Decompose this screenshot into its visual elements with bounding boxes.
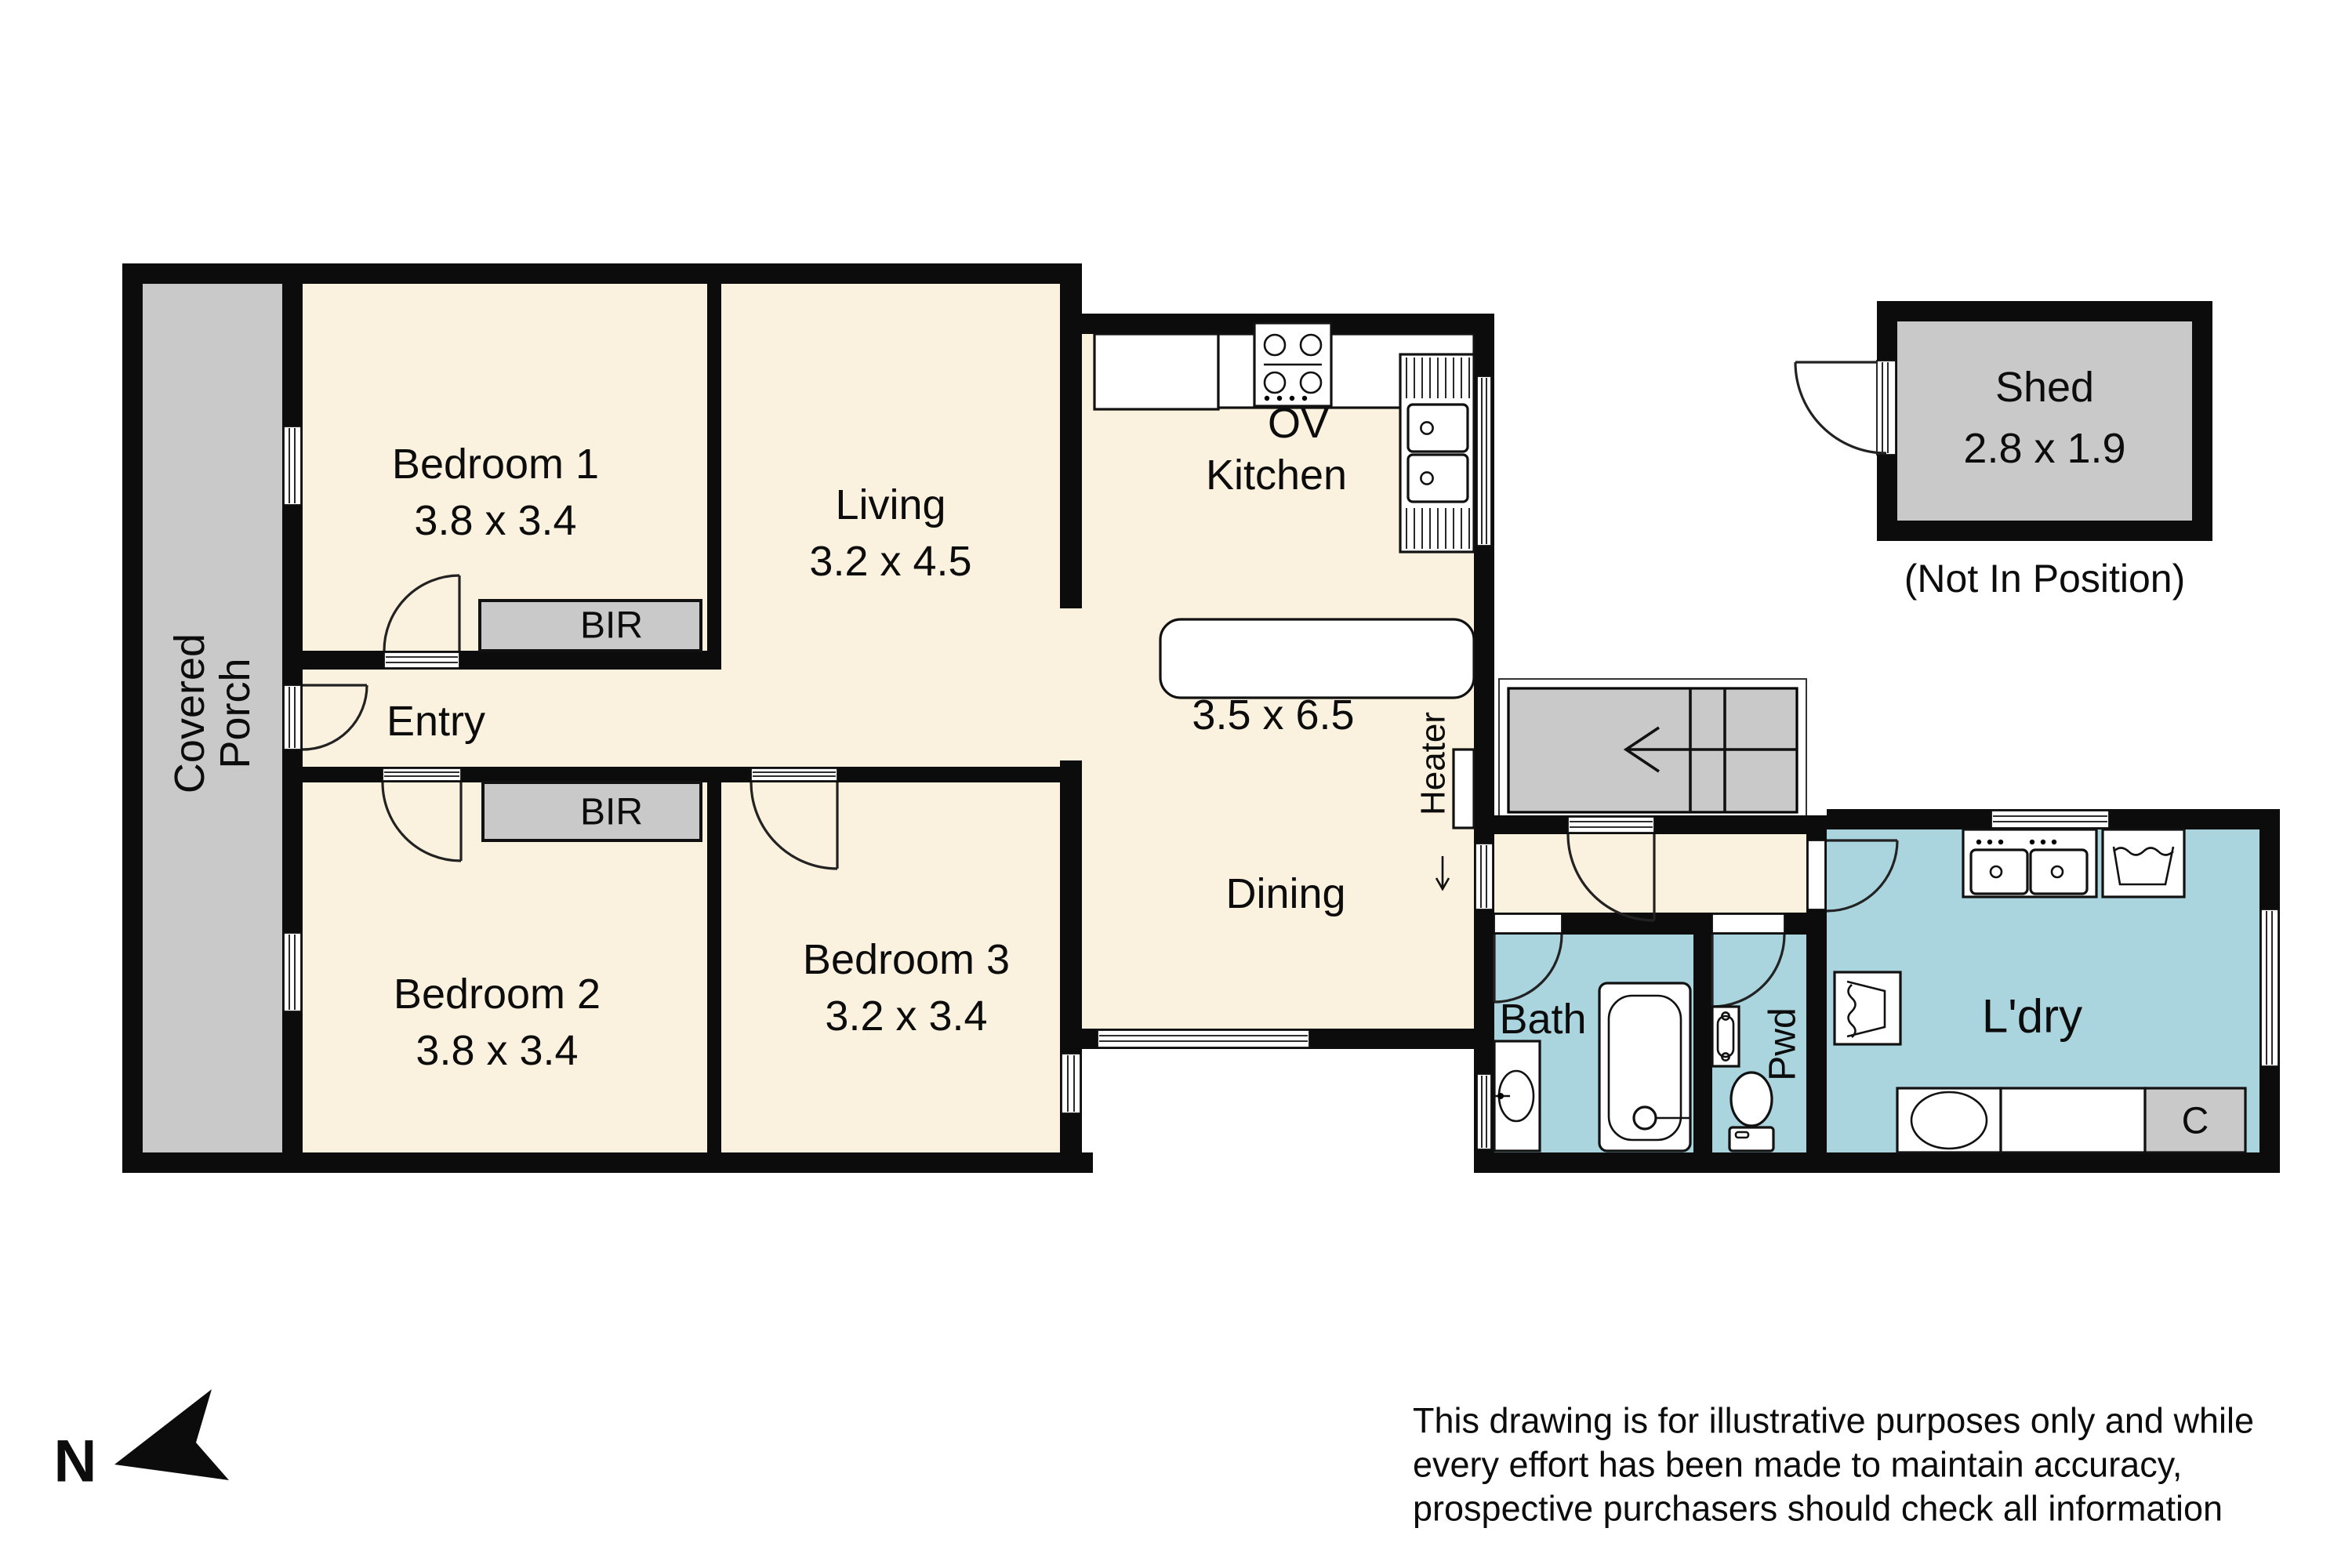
- shed: [1795, 301, 2212, 541]
- island-bench: [1160, 619, 1474, 698]
- porch-label-line1: Covered: [166, 633, 213, 793]
- powder-door-threshold: [1712, 914, 1784, 933]
- shed-note: (Not In Position): [1904, 557, 2185, 601]
- north-arrow: N: [54, 1389, 229, 1495]
- wall-mid-lower: [707, 767, 721, 1173]
- bedroom2-door-threshold: [383, 768, 461, 781]
- front-door-opening: [284, 685, 301, 750]
- cupboard-label: C: [2182, 1101, 2209, 1142]
- bathtub-icon: [1599, 983, 1690, 1151]
- wall-wing-bottom: [1474, 1152, 2280, 1173]
- dining-label: Dining: [1225, 870, 1345, 917]
- wall-top: [122, 263, 1082, 284]
- bedroom2-label: Bedroom 2: [394, 971, 601, 1018]
- bir1-label: BIR: [580, 605, 643, 647]
- laundry-top-window: [1991, 811, 2109, 828]
- bath-door-threshold: [1494, 914, 1562, 933]
- wall-bottom-main: [122, 1152, 1093, 1173]
- dining-bottom-window: [1098, 1030, 1309, 1047]
- rear-landing: [1499, 679, 1806, 822]
- hand-basin-icon: [1712, 1007, 1739, 1066]
- floor-plan-drawing: Covered Porch Bedroom 1 3.8 x 3.4 Living…: [0, 0, 2352, 1568]
- laundry-door-threshold: [1808, 840, 1825, 909]
- bedroom1-door-threshold: [384, 652, 459, 668]
- shed-door-threshold: [1877, 361, 1896, 455]
- kitchen-label: Kitchen: [1206, 452, 1347, 499]
- bedroom3-door-threshold: [751, 768, 837, 781]
- living-label: Living: [835, 481, 946, 528]
- living-dims: 3.2 x 4.5: [809, 538, 971, 585]
- kitchen-window: [1477, 376, 1491, 546]
- dining-dims: 3.5 x 6.5: [1192, 691, 1354, 739]
- heater-label: Heater: [1414, 712, 1453, 815]
- bedroom1-window: [284, 426, 301, 505]
- bedroom2-window: [284, 933, 301, 1011]
- vanity-basin-icon: [1494, 1041, 1540, 1151]
- toilet-icon: [1730, 1073, 1773, 1151]
- laundry-bench: [2001, 1088, 2145, 1152]
- wall-hallway-top: [1494, 815, 1827, 834]
- bedroom3-dims: 3.2 x 3.4: [825, 993, 987, 1040]
- kitchen-sink-icon: [1400, 354, 1474, 552]
- dining-hall-opening: [1475, 844, 1493, 909]
- floor-plan-page: Covered Porch Bedroom 1 3.8 x 3.4 Living…: [0, 0, 2352, 1568]
- rear-notch-window: [1062, 1054, 1080, 1113]
- shed-dims: 2.8 x 1.9: [1963, 425, 2125, 472]
- wall-mid-upper: [707, 284, 721, 670]
- laundry-trough-icon: [2103, 829, 2184, 897]
- north-arrow-icon: [114, 1389, 229, 1480]
- disclaimer-text: This drawing is for illustrative purpose…: [1413, 1401, 2254, 1529]
- oven-label: OV: [1268, 400, 1329, 447]
- wall-bath-powder: [1693, 935, 1712, 1173]
- bedroom3-label: Bedroom 3: [803, 936, 1010, 983]
- entry-label: Entry: [387, 698, 485, 745]
- bath-window: [1477, 1074, 1491, 1149]
- wash-trough-icon: [1835, 972, 1900, 1044]
- bedroom1-label: Bedroom 1: [392, 441, 599, 488]
- shed-door: [1795, 362, 1886, 453]
- bedroom2-dims: 3.8 x 3.4: [416, 1027, 578, 1074]
- laundry-label: L'dry: [1982, 990, 2082, 1043]
- wall-living-kitchen-divider: [1060, 263, 1082, 608]
- bir2-label: BIR: [580, 792, 643, 833]
- bath-label: Bath: [1499, 996, 1586, 1043]
- disclaimer-line2: every effort has been made to maintain a…: [1413, 1445, 2182, 1485]
- hallway-floor: [1494, 834, 1806, 913]
- shed-floor: [1897, 321, 2192, 521]
- back-door-threshold: [1568, 817, 1654, 833]
- shed-label: Shed: [1995, 364, 2094, 411]
- wall-entry-north: [303, 651, 721, 670]
- wall-porch-left: [122, 263, 143, 1173]
- disclaimer-line3: prospective purchasers should check all …: [1413, 1489, 2223, 1529]
- laundry-right-window: [2261, 909, 2278, 1066]
- powder-label: Pwd: [1762, 1007, 1804, 1080]
- fridge-space: [1094, 334, 1218, 409]
- disclaimer-line1: This drawing is for illustrative purpose…: [1413, 1401, 2254, 1441]
- washing-machine-icon: [1897, 1088, 2001, 1152]
- bedroom1-dims: 3.8 x 3.4: [414, 497, 576, 544]
- stove-icon: [1254, 323, 1331, 406]
- laundry-sink-icon: [1963, 829, 2096, 897]
- porch-label-line2: Porch: [212, 658, 259, 768]
- north-label: N: [54, 1428, 97, 1495]
